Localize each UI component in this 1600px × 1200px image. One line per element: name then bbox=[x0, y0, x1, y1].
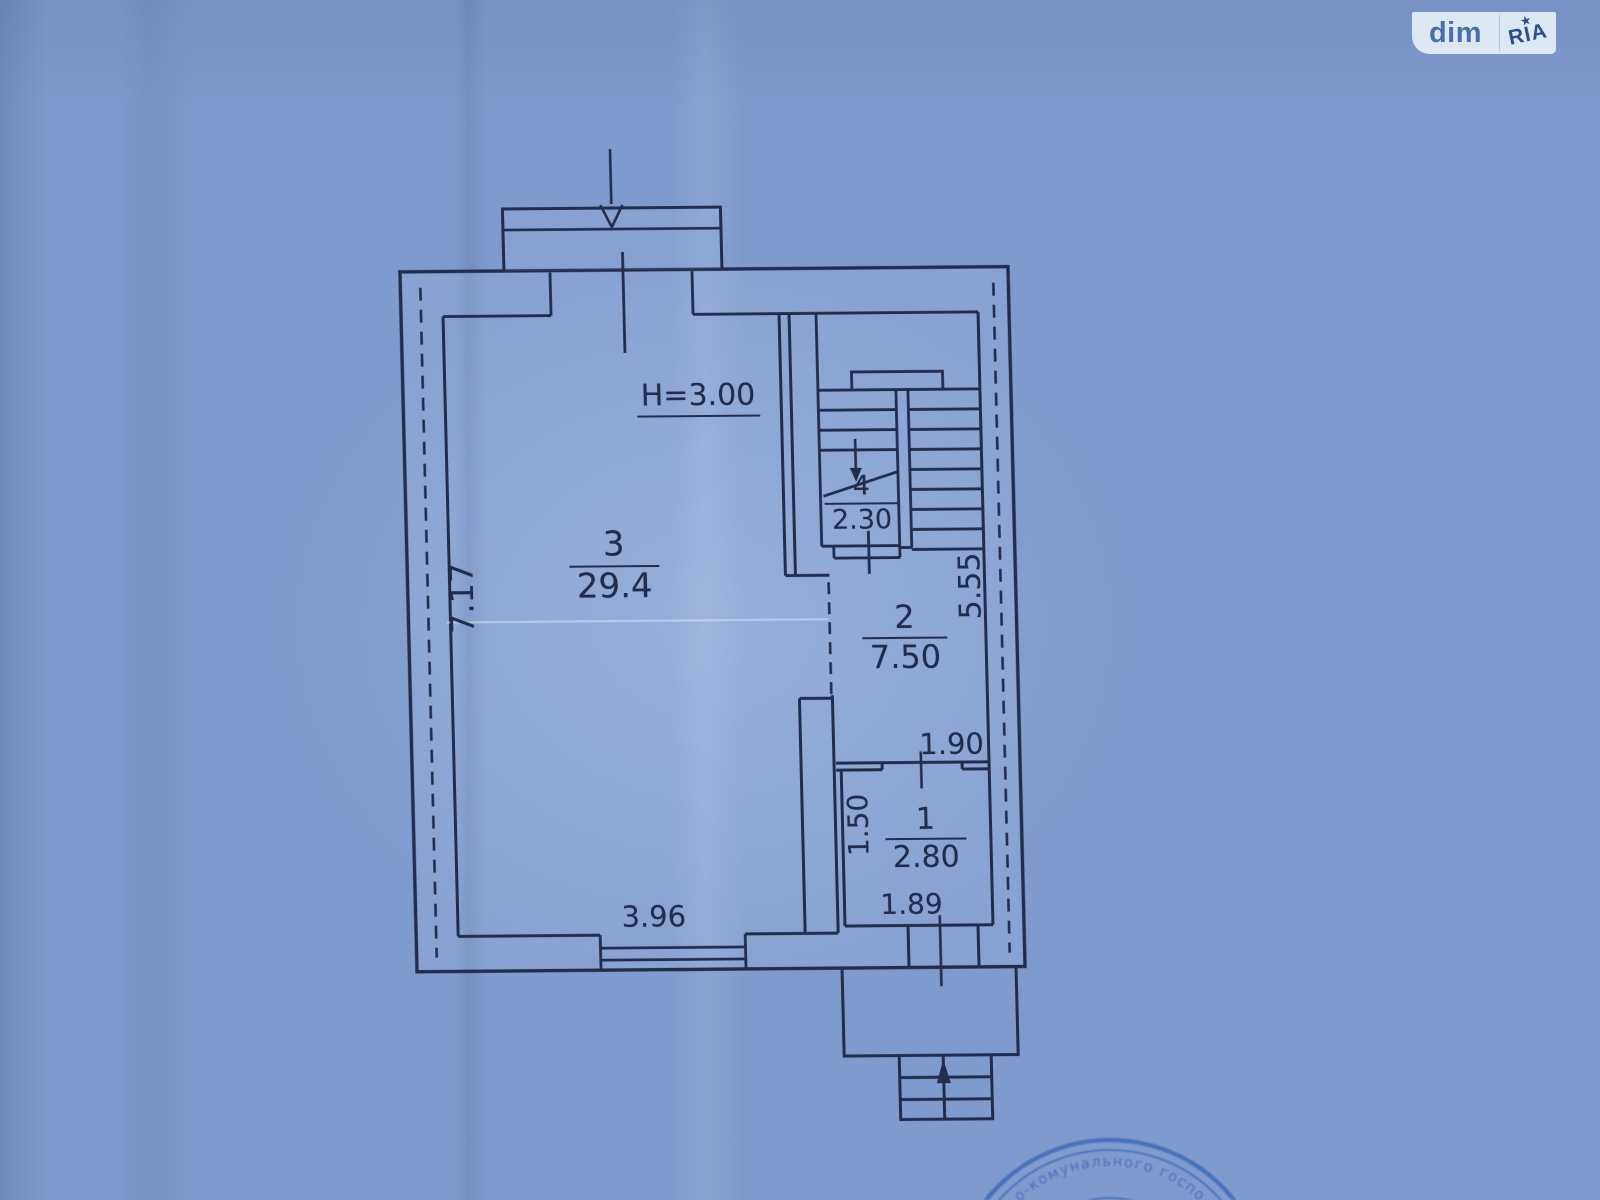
dim-logo-text: dim bbox=[1412, 12, 1499, 54]
stamp-seal: о-комунального госпо щиних Аге bbox=[0, 0, 1600, 1200]
ria-logo-text: RIA bbox=[1507, 19, 1550, 51]
dimria-watermark: dim ★ RIA bbox=[1412, 12, 1556, 54]
stamp-outer-text: о-комунального госпо bbox=[1011, 1154, 1208, 1200]
floorplan-photo: H=3.00 3 29.4 4 2.30 2 7.50 1 2.80 7.17 … bbox=[0, 0, 1600, 1200]
ria-logo: ★ RIA bbox=[1500, 12, 1556, 54]
